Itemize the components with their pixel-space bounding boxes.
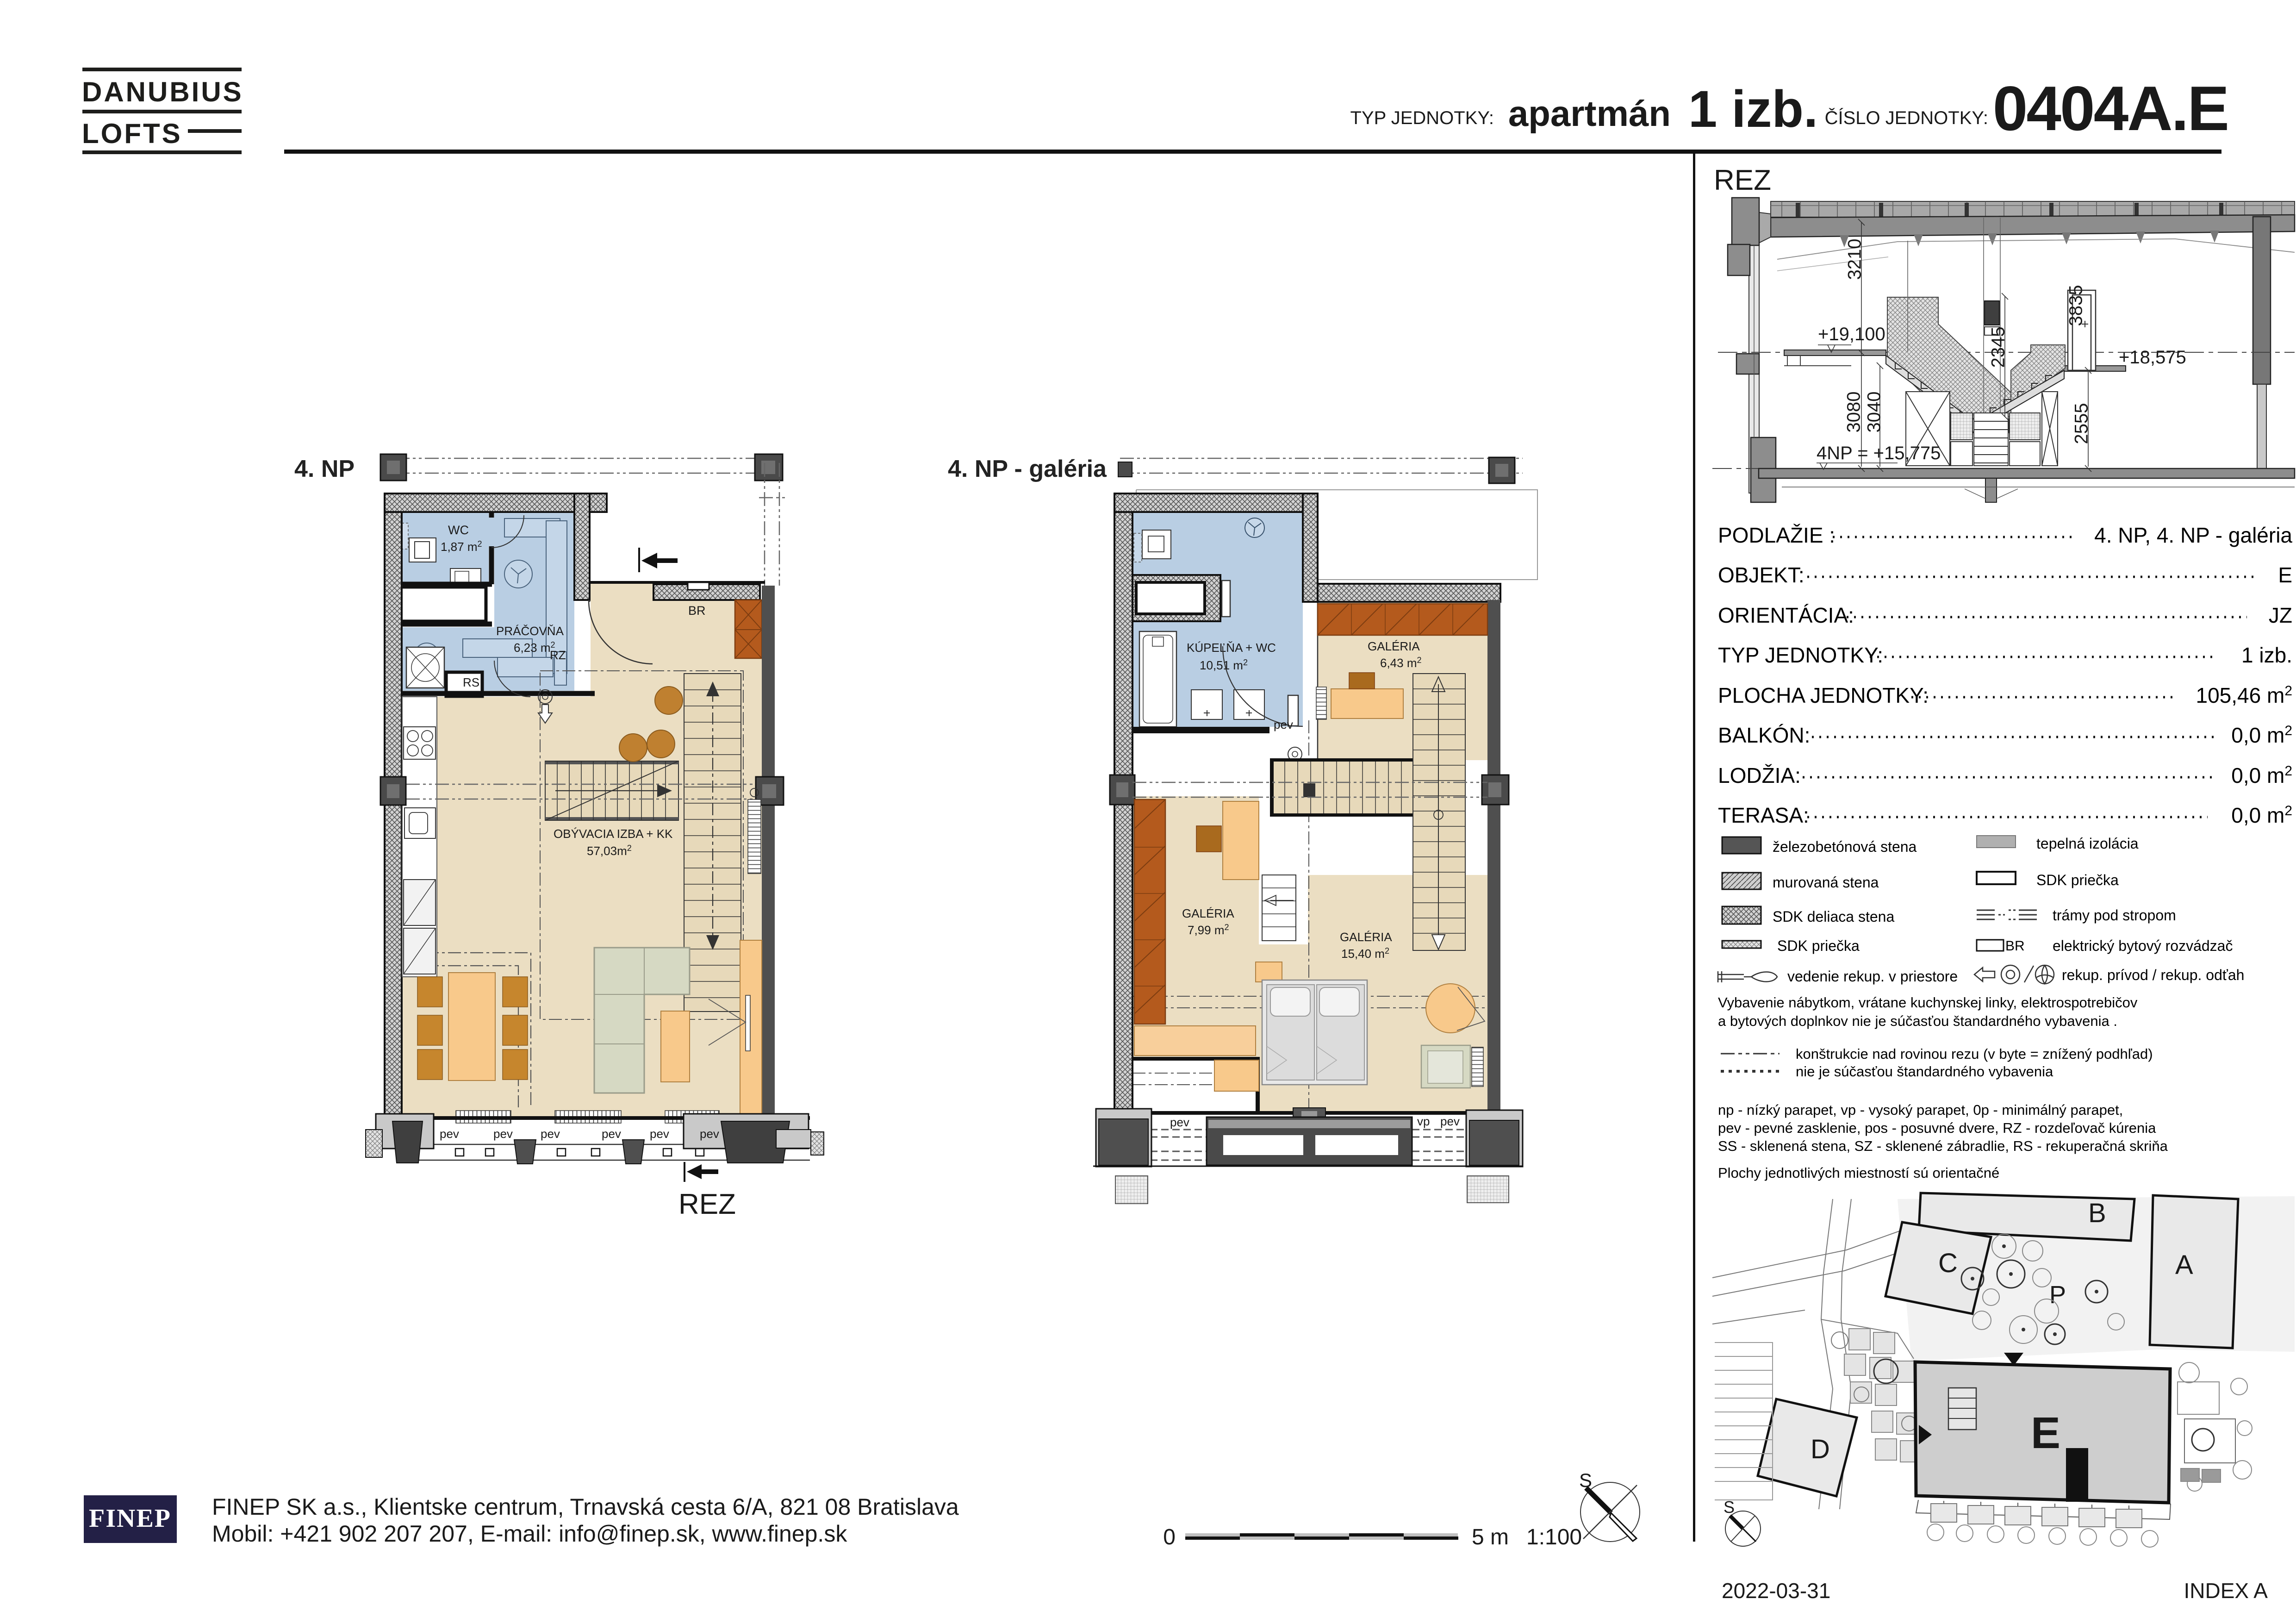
svg-text:RS: RS: [463, 675, 479, 689]
svg-text:železobetónová stena: železobetónová stena: [1773, 838, 1917, 855]
svg-text:3835: 3835: [2066, 285, 2086, 326]
svg-text:4. NP: 4. NP: [294, 456, 355, 482]
svg-text:5 m: 5 m: [1472, 1525, 1509, 1549]
svg-text:TERASA:: TERASA:: [1718, 803, 1809, 827]
svg-text:P: P: [2049, 1281, 2066, 1309]
svg-text:2022-03-31: 2022-03-31: [1722, 1579, 1830, 1603]
svg-text:ORIENTÁCIA:: ORIENTÁCIA:: [1718, 603, 1854, 627]
svg-text:GALÉRIA: GALÉRIA: [1182, 906, 1234, 920]
svg-text:105,46 m2: 105,46 m2: [2196, 683, 2292, 707]
svg-text:E: E: [2278, 563, 2292, 587]
svg-text:3040: 3040: [1864, 392, 1885, 433]
svg-text:RZ: RZ: [550, 648, 566, 662]
svg-text:0: 0: [1163, 1525, 1176, 1549]
svg-text:REZ: REZ: [678, 1188, 736, 1220]
svg-text:E: E: [2031, 1408, 2060, 1458]
svg-text:3080: 3080: [1844, 392, 1864, 433]
svg-text:7,99 m2: 7,99 m2: [1188, 923, 1229, 937]
svg-text:57,03m2: 57,03m2: [587, 843, 632, 858]
svg-text:OBÝVACIA IZBA + KK: OBÝVACIA IZBA + KK: [554, 827, 673, 841]
svg-text:Vybavenie nábytkom, vrátane ku: Vybavenie nábytkom, vrátane kuchynskej l…: [1718, 994, 2138, 1011]
svg-text:trámy pod stropom: trámy pod stropom: [2053, 907, 2176, 924]
svg-text:pev: pev: [1440, 1114, 1460, 1128]
svg-text:tepelná izolácia: tepelná izolácia: [2036, 835, 2139, 852]
svg-text:vedenie rekup. v priestore: vedenie rekup. v priestore: [1787, 968, 1958, 985]
svg-text:GALÉRIA: GALÉRIA: [1368, 639, 1420, 653]
svg-text:4. NP, 4. NP - galéria: 4. NP, 4. NP - galéria: [2094, 523, 2292, 547]
svg-text:15,40 m2: 15,40 m2: [1341, 946, 1389, 961]
svg-text:pev: pev: [602, 1127, 621, 1141]
svg-text:BR: BR: [688, 604, 706, 618]
svg-text:1 izb.: 1 izb.: [1688, 80, 1818, 138]
svg-text:GALÉRIA: GALÉRIA: [1340, 930, 1392, 944]
svg-text:pev: pev: [541, 1127, 560, 1141]
svg-text:JZ: JZ: [2269, 603, 2292, 627]
svg-text:pev: pev: [650, 1127, 669, 1141]
svg-text:pev: pev: [700, 1127, 719, 1141]
svg-text:LOFTS: LOFTS: [82, 118, 182, 149]
svg-text:vp: vp: [1417, 1114, 1430, 1128]
svg-text:0,0 m2: 0,0 m2: [2231, 723, 2292, 747]
svg-text:pev: pev: [440, 1127, 459, 1141]
svg-text:6,23 m2: 6,23 m2: [514, 640, 555, 655]
svg-text:FINEP SK a.s., Klientske centr: FINEP SK a.s., Klientske centrum, Trnavs…: [212, 1494, 959, 1520]
svg-text:A: A: [2175, 1250, 2193, 1280]
svg-text:pev: pev: [493, 1127, 513, 1141]
svg-text:pev: pev: [1274, 718, 1293, 731]
svg-text:+19,100: +19,100: [1818, 324, 1885, 344]
svg-text:SDK priečka: SDK priečka: [1777, 937, 1860, 954]
svg-text:konštrukcie nad rovinou rezu (: konštrukcie nad rovinou rezu (v byte = z…: [1796, 1046, 2153, 1062]
svg-text:6,43 m2: 6,43 m2: [1380, 656, 1422, 670]
svg-text:+18,575: +18,575: [2119, 347, 2186, 368]
svg-text:PRÁČOVŇA: PRÁČOVŇA: [496, 624, 564, 638]
svg-text:DANUBIUS: DANUBIUS: [82, 76, 243, 107]
svg-text:TYP JEDNOTKY:: TYP JEDNOTKY:: [1350, 108, 1494, 128]
svg-text:OBJEKT:: OBJEKT:: [1718, 563, 1804, 587]
svg-text:WC: WC: [448, 523, 469, 537]
svg-text:4NP = +15,775: 4NP = +15,775: [1817, 443, 1941, 463]
svg-text:C: C: [1938, 1248, 1958, 1278]
svg-text:D: D: [1811, 1434, 1830, 1464]
svg-text:0,0 m2: 0,0 m2: [2231, 803, 2292, 827]
svg-text:a bytových doplnkov nie je sú: a bytových doplnkov nie je súčasťou štan…: [1718, 1013, 2117, 1029]
svg-text:BALKÓN:: BALKÓN:: [1718, 723, 1810, 747]
svg-text:SS - sklenená stena, SZ - skle: SS - sklenená stena, SZ - sklenené zábra…: [1718, 1138, 2168, 1154]
svg-text:1 izb.: 1 izb.: [2241, 643, 2292, 667]
svg-text:SDK priečka: SDK priečka: [2036, 872, 2119, 888]
svg-text:0404A.E: 0404A.E: [1993, 73, 2228, 144]
svg-text:FINEP: FINEP: [89, 1504, 171, 1533]
svg-text:pev: pev: [1170, 1115, 1189, 1129]
svg-text:np - nízký parapet, vp - vysok: np - nízký parapet, vp - vysoký parapet,…: [1718, 1102, 2123, 1118]
svg-text:3210: 3210: [1845, 239, 1865, 280]
svg-text:1,87 m2: 1,87 m2: [441, 539, 482, 554]
svg-text:INDEX A: INDEX A: [2184, 1579, 2268, 1603]
svg-text:murovaná stena: murovaná stena: [1773, 874, 1879, 891]
svg-text:4. NP - galéria: 4. NP - galéria: [948, 456, 1107, 482]
svg-text:Plochy jednotlivých miestností: Plochy jednotlivých miestností sú orient…: [1718, 1165, 1999, 1181]
svg-text:pev - pevné zasklenie, pos - p: pev - pevné zasklenie, pos - posuvné dve…: [1718, 1120, 2156, 1136]
svg-text:apartmán: apartmán: [1508, 93, 1671, 134]
svg-text:Mobil: +421 902 207 207, E-mai: Mobil: +421 902 207 207, E-mail: info@fi…: [212, 1521, 847, 1547]
svg-text:PLOCHA JEDNOTKY:: PLOCHA JEDNOTKY:: [1718, 683, 1929, 707]
svg-text:S: S: [1579, 1469, 1592, 1491]
svg-text:BR: BR: [2005, 938, 2025, 954]
svg-text:nie je súčasťou štandardného v: nie je súčasťou štandardného vybavenia: [1796, 1063, 2053, 1080]
svg-text:rekup. prívod / rekup. odťah: rekup. prívod / rekup. odťah: [2062, 967, 2244, 983]
svg-text:ČÍSLO JEDNOTKY:: ČÍSLO JEDNOTKY:: [1825, 107, 1988, 128]
svg-text:KÚPEĽŇA + WC: KÚPEĽŇA + WC: [1187, 641, 1276, 655]
svg-text:1:100: 1:100: [1526, 1525, 1582, 1549]
svg-text:2555: 2555: [2072, 403, 2092, 444]
svg-text:elektrický bytový rozvádzač: elektrický bytový rozvádzač: [2053, 937, 2233, 954]
svg-text:LODŽIA:: LODŽIA:: [1718, 763, 1801, 787]
svg-text:SDK deliaca stena: SDK deliaca stena: [1773, 908, 1894, 925]
svg-text:2345: 2345: [1988, 327, 2009, 368]
svg-text:PODLAŽIE :: PODLAŽIE :: [1718, 523, 1835, 547]
svg-text:TYP JEDNOTKY:: TYP JEDNOTKY:: [1718, 643, 1883, 667]
svg-text:0,0 m2: 0,0 m2: [2231, 763, 2292, 787]
svg-text:B: B: [2088, 1198, 2106, 1228]
svg-text:REZ: REZ: [1714, 164, 1771, 196]
